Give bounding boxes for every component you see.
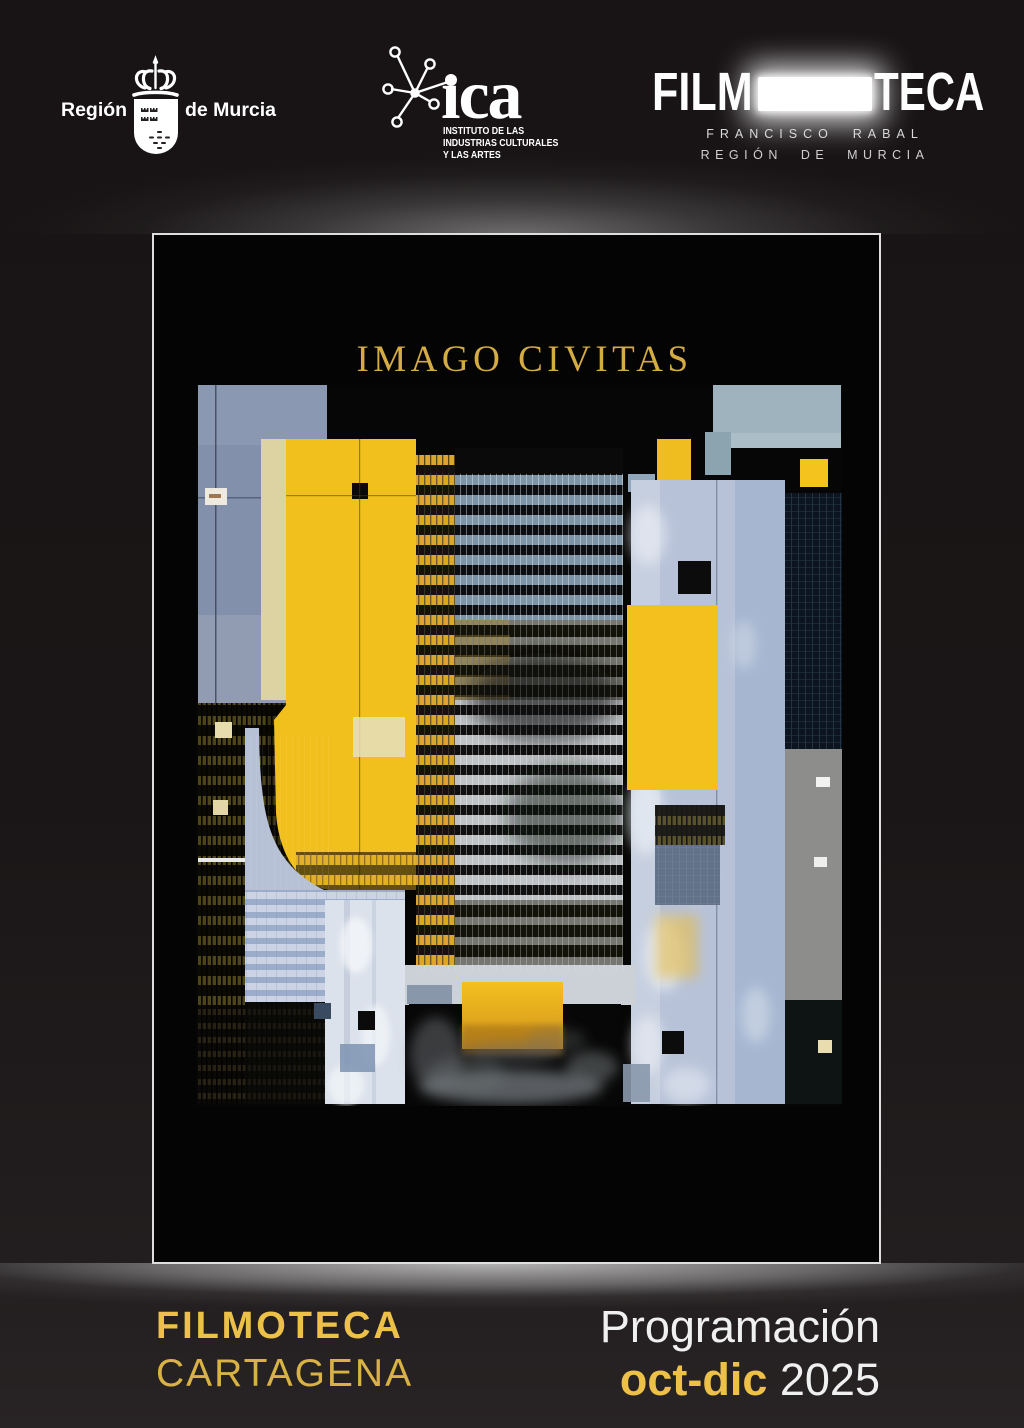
svg-text:INSTITUTO DE LAS: INSTITUTO DE LAS	[443, 125, 525, 137]
svg-text:de Murcia: de Murcia	[185, 99, 276, 121]
svg-text:Y LAS ARTES: Y LAS ARTES	[443, 149, 501, 161]
svg-text:Región: Región	[61, 99, 127, 121]
svg-text:INDUSTRIAS CULTURALES: INDUSTRIAS CULTURALES	[443, 137, 559, 149]
svg-text:ıca: ıca	[441, 57, 522, 134]
